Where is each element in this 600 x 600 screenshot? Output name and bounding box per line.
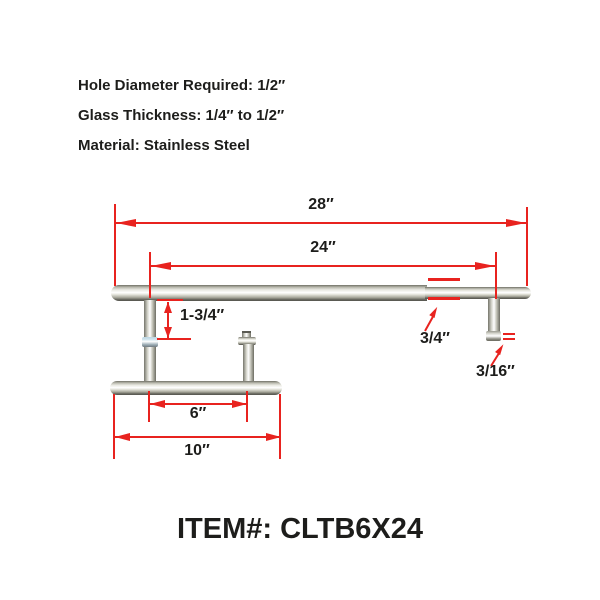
dim-10-label: 10″: [167, 442, 227, 460]
product-dimension-diagram: Hole Diameter Required: 1/2″ Glass Thick…: [0, 0, 600, 600]
arrowhead-right-icon: [475, 262, 495, 270]
dim-28-line: [116, 222, 526, 224]
dim-28-extension-left: [114, 204, 116, 286]
dim-1-3-4-extension-bottom: [157, 338, 191, 340]
spec-glass-thickness: Glass Thickness: 1/4″ to 1/2″: [78, 101, 285, 131]
dim-10-line: [115, 436, 281, 438]
dim-28-label: 28″: [291, 196, 351, 214]
arrowhead-left-icon: [116, 219, 136, 227]
dim-24-label: 24″: [293, 239, 353, 257]
arrowhead-right-icon: [232, 400, 247, 408]
arrowhead-up-icon: [164, 302, 172, 313]
dim-10-extension-left: [113, 394, 115, 459]
dim-24-line: [151, 265, 495, 267]
glass-washer-joint: [142, 337, 158, 347]
end-mounting-post: [488, 298, 500, 332]
arrowhead-left-icon: [151, 262, 171, 270]
dim-1-3-4-line: [167, 302, 169, 338]
diameter-tick-bottom: [428, 297, 460, 300]
dim-3-4-label: 3/4″: [420, 330, 450, 348]
gap-mark-top: [503, 333, 515, 335]
gap-mark-bottom: [503, 338, 515, 340]
dim-10-extension-right: [279, 394, 281, 459]
spec-material: Material: Stainless Steel: [78, 131, 285, 161]
dim-28-extension-right: [526, 207, 528, 286]
pull-handle-bar: [110, 381, 282, 395]
dim-1-3-4-extension-top: [157, 299, 183, 301]
arrowhead-right-icon: [506, 219, 526, 227]
spec-text-block: Hole Diameter Required: 1/2″ Glass Thick…: [78, 71, 285, 161]
dim-1-3-4-label: 1-3/4″: [180, 307, 224, 325]
handle-mounting-post: [243, 344, 254, 382]
dim-24-extension-right: [495, 252, 497, 299]
diameter-tick-top: [428, 278, 460, 281]
arrowhead-down-icon: [164, 327, 172, 338]
dim-3-16-label: 3/16″: [476, 363, 515, 381]
spec-hole-diameter: Hole Diameter Required: 1/2″: [78, 71, 285, 101]
dim-24-extension-left: [149, 252, 151, 298]
end-post-fitting: [486, 331, 501, 341]
arrowhead-left-icon: [115, 433, 130, 441]
dim-6-label: 6″: [168, 405, 228, 423]
item-number: ITEM#: CLTB6X24: [0, 513, 600, 546]
arrowhead-right-icon: [266, 433, 281, 441]
arrowhead-left-icon: [150, 400, 165, 408]
